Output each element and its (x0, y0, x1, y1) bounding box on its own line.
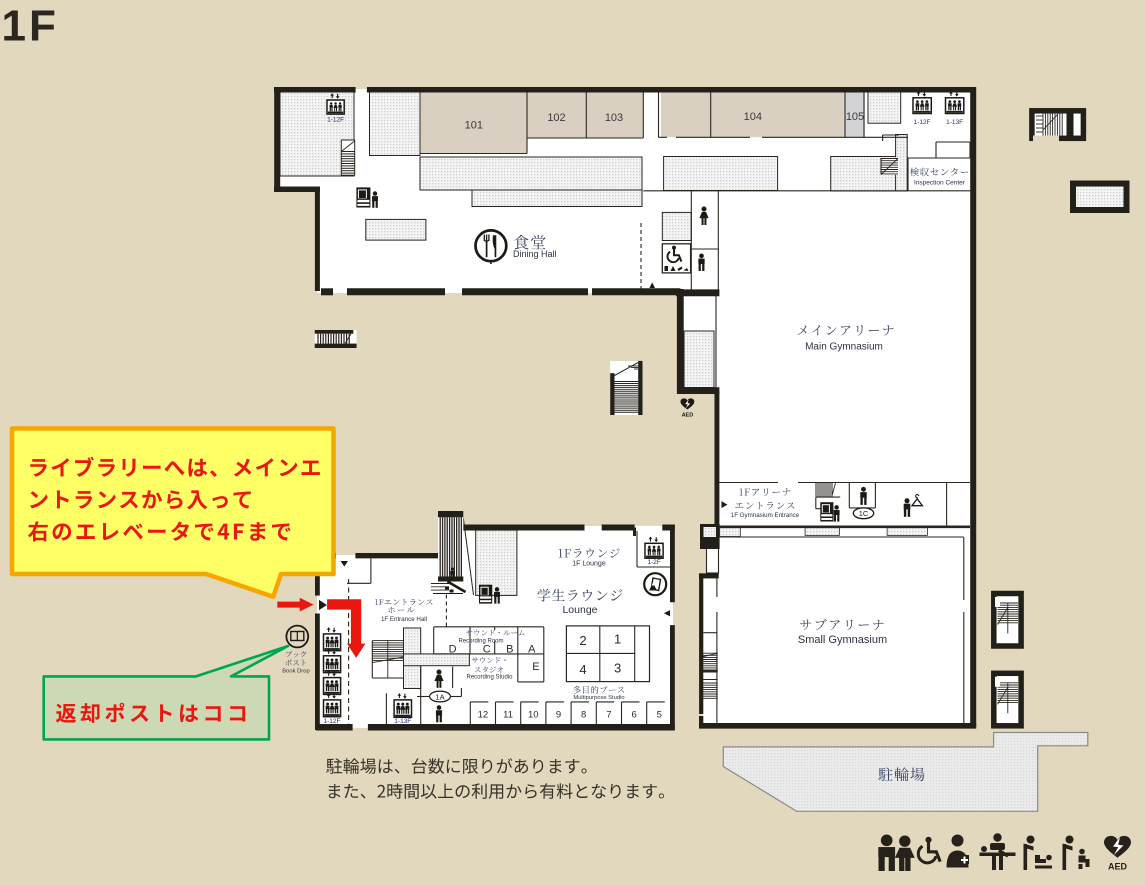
svg-text:1-13F: 1-13F (394, 718, 411, 725)
svg-text:B: B (506, 644, 513, 656)
svg-text:10: 10 (528, 710, 539, 721)
svg-text:12: 12 (478, 710, 489, 721)
svg-text:Recording Studio: Recording Studio (466, 674, 513, 680)
svg-text:5: 5 (657, 710, 662, 721)
svg-text:1-12F: 1-12F (327, 117, 344, 124)
svg-text:D: D (449, 644, 457, 656)
svg-text:1: 1 (614, 632, 621, 647)
svg-text:3: 3 (614, 661, 621, 676)
svg-text:1C: 1C (859, 509, 869, 518)
svg-text:1-12F: 1-12F (914, 119, 931, 126)
svg-text:Book Drop: Book Drop (282, 668, 309, 674)
svg-text:C: C (483, 644, 491, 656)
svg-text:105: 105 (846, 111, 864, 123)
svg-text:9: 9 (556, 710, 561, 721)
svg-text:AED: AED (682, 413, 694, 419)
svg-text:1F Entrance Hall: 1F Entrance Hall (381, 616, 427, 623)
svg-text:1F Gymnasium Entrance: 1F Gymnasium Entrance (731, 512, 800, 519)
svg-text:A: A (528, 644, 536, 656)
svg-text:E: E (532, 661, 539, 673)
svg-text:Multipurpose Studio: Multipurpose Studio (573, 695, 624, 701)
svg-text:1F: 1F (2, 2, 59, 51)
svg-text:11: 11 (503, 710, 513, 721)
svg-text:104: 104 (744, 111, 762, 123)
svg-text:Recording Room: Recording Room (458, 638, 503, 644)
svg-text:4: 4 (579, 662, 586, 677)
svg-text:1A: 1A (435, 692, 444, 701)
svg-text:102: 102 (547, 112, 565, 124)
svg-text:8: 8 (581, 710, 586, 721)
svg-text:Inspection Center: Inspection Center (914, 180, 966, 187)
svg-text:Dining Hall: Dining Hall (513, 249, 557, 259)
svg-text:101: 101 (465, 119, 483, 131)
svg-text:7: 7 (606, 710, 611, 721)
svg-text:Lounge: Lounge (562, 604, 597, 616)
svg-text:103: 103 (605, 112, 623, 124)
svg-text:Small Gymnasium: Small Gymnasium (798, 634, 887, 646)
svg-text:2: 2 (579, 633, 586, 648)
svg-text:1-12F: 1-12F (324, 718, 341, 725)
svg-text:1-2F: 1-2F (647, 559, 660, 566)
svg-text:1-13F: 1-13F (946, 119, 963, 126)
svg-text:AED: AED (1108, 862, 1128, 872)
svg-text:Main Gymnasium: Main Gymnasium (805, 342, 883, 353)
svg-text:6: 6 (631, 710, 636, 721)
svg-text:1F Lounge: 1F Lounge (572, 561, 606, 568)
